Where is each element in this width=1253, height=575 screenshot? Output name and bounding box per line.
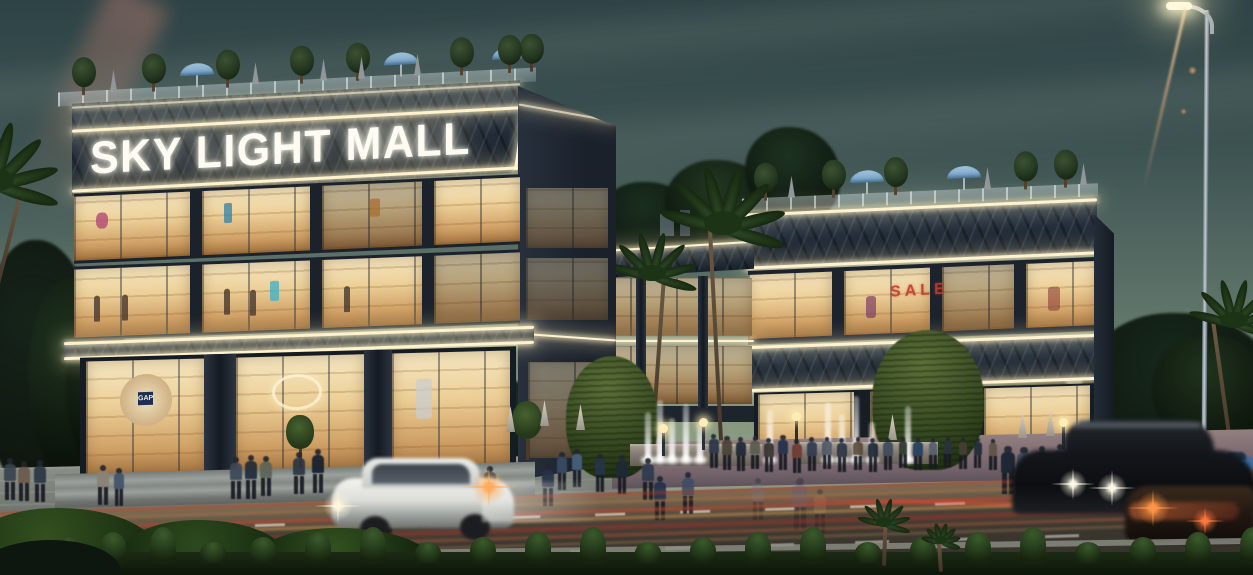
- median-palm: [921, 530, 961, 575]
- palm-crown: [876, 517, 892, 527]
- mall-rendering-scene: SALE: [0, 0, 1253, 575]
- palm-trunk: [882, 522, 888, 566]
- median-palms-layer: [0, 0, 1253, 575]
- median-palm: [857, 509, 911, 575]
- palm-crown: [935, 536, 947, 543]
